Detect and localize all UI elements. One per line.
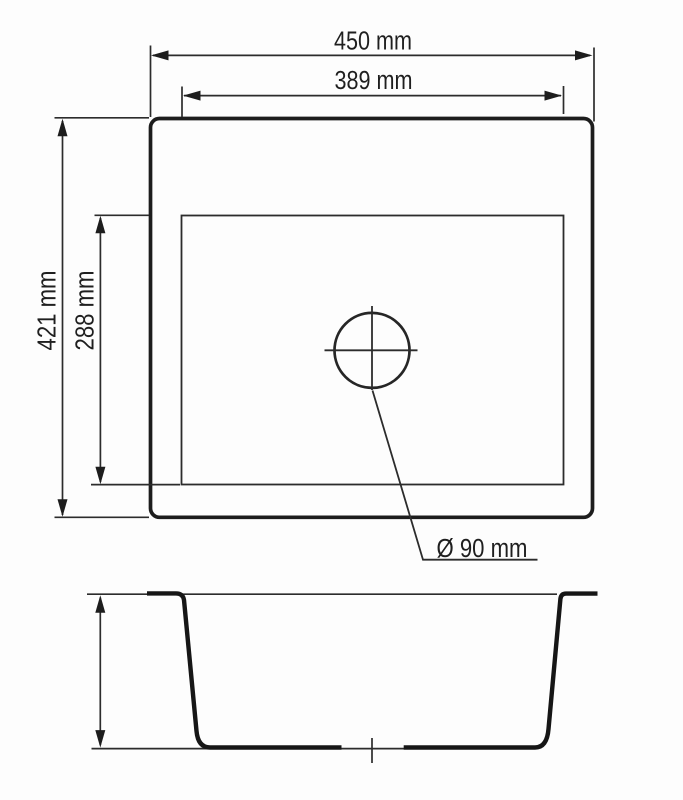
svg-text:Ø 90 mm: Ø 90 mm (437, 535, 528, 563)
svg-text:421 mm: 421 mm (34, 271, 62, 351)
svg-text:389 mm: 389 mm (335, 67, 413, 95)
svg-text:450 mm: 450 mm (334, 28, 412, 56)
svg-text:288 mm: 288 mm (72, 271, 100, 351)
